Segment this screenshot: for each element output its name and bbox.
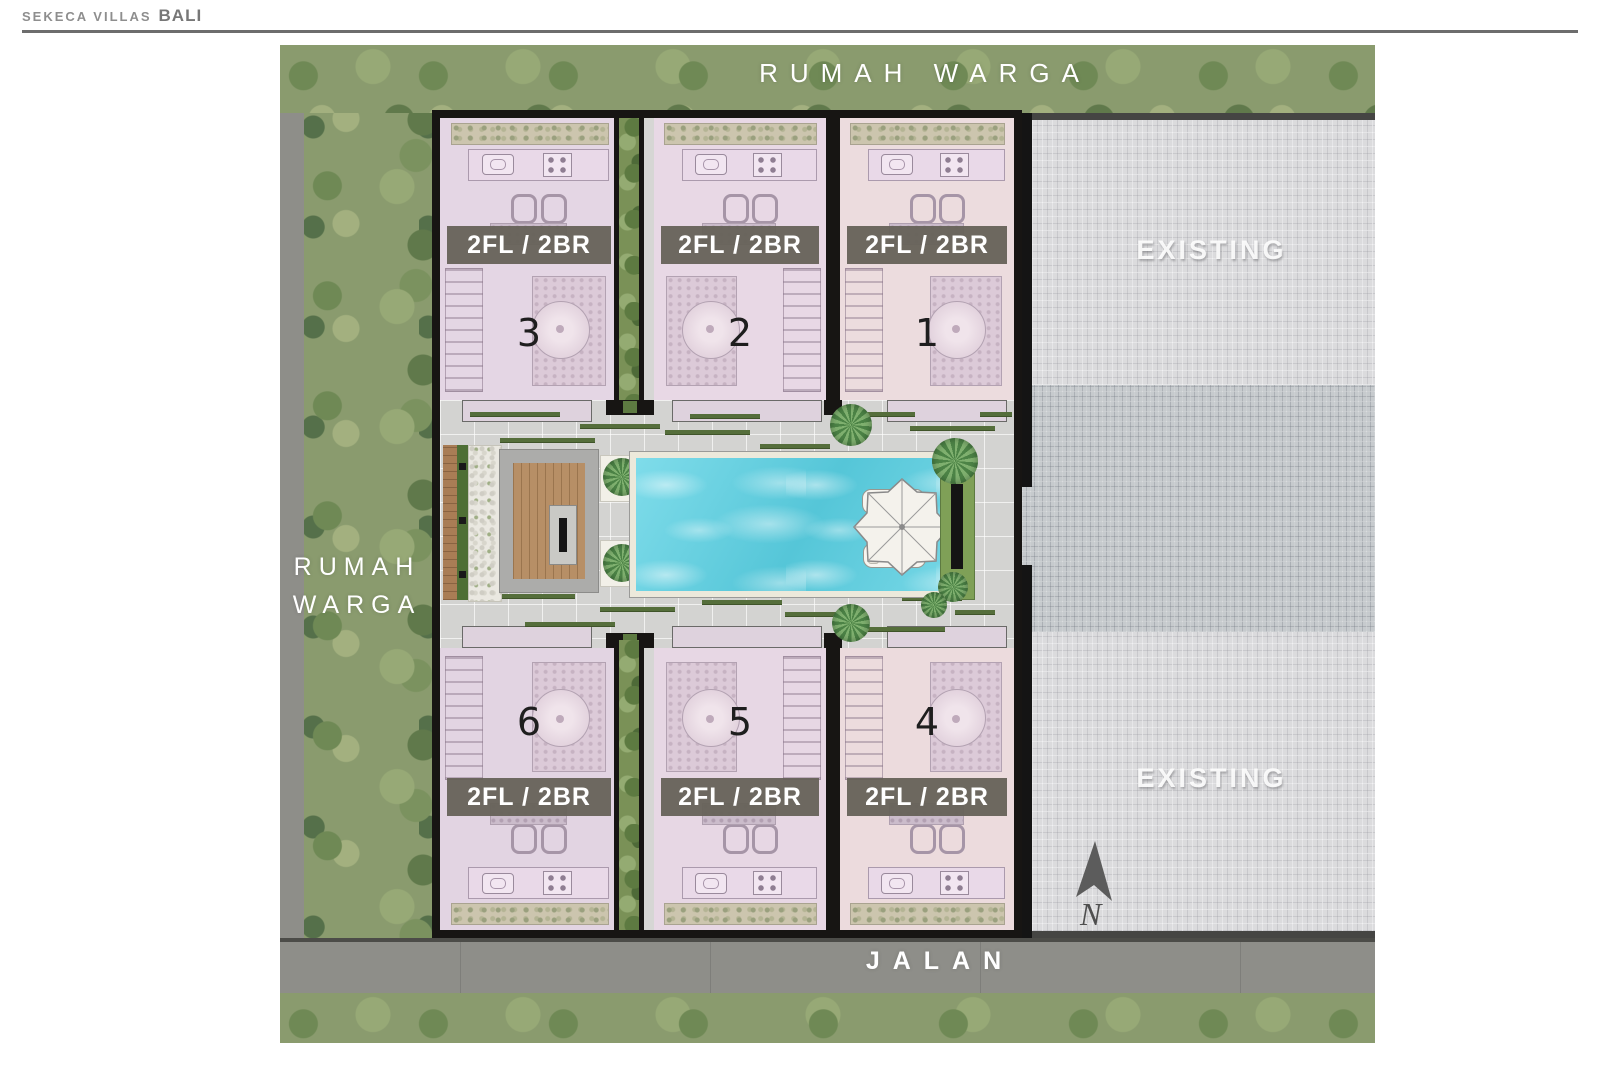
kitchen-counter: [682, 149, 818, 181]
kitchen-counter: [682, 867, 818, 899]
villa-4: 2FL / 2BR 4: [840, 648, 1014, 930]
site-plan: RUMAH WARGA RUMAH WARGA: [280, 45, 1375, 1043]
unit-number: 4: [840, 700, 1014, 744]
stool-icon: [723, 824, 749, 854]
grass-strip: [690, 414, 760, 419]
sink-icon: [482, 154, 514, 175]
shrub-icon: [921, 592, 947, 618]
label-rumah-warga-left: RUMAH WARGA: [282, 548, 432, 624]
sink-icon: [695, 154, 727, 175]
grass-strip: [760, 444, 830, 449]
stool-icon: [723, 194, 749, 224]
unit-spec-banner: 2FL / 2BR: [661, 226, 819, 264]
stool-icon: [511, 824, 537, 854]
lamp-icon: [459, 463, 466, 470]
pebble-garden: [468, 445, 502, 602]
kitchen-counter: [468, 867, 609, 899]
water-feature-icon: [951, 484, 963, 569]
garden-strip: [664, 123, 817, 145]
stool-icon: [541, 824, 567, 854]
garden-strip: [451, 903, 609, 925]
label-existing-bottom: EXISTING: [1022, 763, 1375, 794]
villa-terrace: [672, 626, 822, 648]
villa-block: 2FL / 2BR 3 2FL /: [432, 110, 1022, 938]
unit-spec-banner: 2FL / 2BR: [447, 226, 611, 264]
kitchen-counter: [868, 149, 1005, 181]
unit-number: 6: [440, 700, 618, 744]
stove-icon: [543, 871, 572, 895]
unit-number: 5: [654, 700, 826, 744]
stool-icon: [939, 824, 965, 854]
grass-strip: [490, 594, 575, 599]
palm-tree-icon: [932, 438, 978, 484]
lamp-icon: [459, 517, 466, 524]
trees-bottom-border: [280, 993, 1375, 1043]
unit-spec-banner: 2FL / 2BR: [447, 778, 611, 816]
villa-1: 2FL / 2BR 1: [840, 118, 1014, 400]
road-seam: [460, 942, 461, 993]
existing-wall-bottom: [1022, 931, 1375, 938]
unit-spec-banner: 2FL / 2BR: [661, 778, 819, 816]
existing-paving-middle: [1022, 385, 1375, 632]
sink-icon: [881, 154, 913, 175]
road-seam: [1240, 942, 1241, 993]
existing-area: EXISTING EXISTING N: [1022, 113, 1375, 938]
grass-border: [457, 445, 468, 600]
fire-table-icon: [549, 505, 577, 565]
garden-strip: [850, 903, 1005, 925]
stool-icon: [752, 824, 778, 854]
grass-strip: [525, 622, 615, 627]
grass-strip: [470, 412, 560, 417]
shrub-icon: [830, 404, 872, 446]
existing-wall-top: [1022, 113, 1375, 120]
sink-icon: [695, 873, 727, 894]
stool-icon: [910, 824, 936, 854]
lamp-icon: [459, 571, 466, 578]
villa-5: 2FL / 2BR 5: [654, 648, 826, 930]
umbrella-icon: [852, 477, 952, 577]
stool-icon: [939, 194, 965, 224]
stove-icon: [753, 153, 782, 177]
grass-strip: [865, 627, 945, 632]
stove-icon: [753, 871, 782, 895]
label-rumah-warga-top: RUMAH WARGA: [610, 58, 1240, 89]
garden-strip: [451, 123, 609, 145]
villa-3: 2FL / 2BR 3: [440, 118, 618, 400]
stove-icon: [543, 153, 572, 177]
garden-strip: [664, 903, 817, 925]
north-arrow-icon: N: [1062, 839, 1124, 931]
party-wall: [826, 118, 840, 400]
unit-spec-banner: 2FL / 2BR: [847, 226, 1007, 264]
unit-spec-banner: 2FL / 2BR: [847, 778, 1007, 816]
garden-strip: [850, 123, 1005, 145]
villa-6: 2FL / 2BR 6: [440, 648, 618, 930]
grass-strip: [665, 430, 750, 435]
villa-2: 2FL / 2BR 2: [654, 118, 826, 400]
boundary-wall: [1022, 565, 1032, 938]
planter-icon: [623, 401, 637, 413]
stool-icon: [541, 194, 567, 224]
sink-icon: [482, 873, 514, 894]
label-rumah-warga-left-line2: WARGA: [282, 586, 432, 624]
wood-deck-pavilion: [500, 450, 598, 592]
label-existing-top: EXISTING: [1022, 235, 1375, 266]
brand-name: SEKECA VILLAS: [22, 9, 152, 24]
stove-icon: [940, 153, 969, 177]
page-header: SEKECA VILLAS BALI: [22, 6, 202, 26]
label-jalan: JALAN: [680, 947, 1200, 976]
grass-strip: [702, 600, 782, 605]
unit-number: 1: [840, 311, 1014, 355]
grass-strip: [600, 607, 675, 612]
unit-number: 2: [654, 311, 826, 355]
unit-number: 3: [440, 311, 618, 355]
grass-strip: [980, 412, 1012, 417]
trees-left-border: [304, 45, 432, 938]
grass-strip: [500, 438, 595, 443]
site-plan-page: SEKECA VILLAS BALI RUMAH WARGA RUMAH WAR…: [0, 0, 1600, 1066]
sink-icon: [881, 873, 913, 894]
kitchen-counter: [868, 867, 1005, 899]
grass-strip: [955, 610, 995, 615]
stool-icon: [752, 194, 778, 224]
label-rumah-warga-left-line1: RUMAH: [282, 548, 432, 586]
stove-icon: [940, 871, 969, 895]
grass-strip: [580, 424, 660, 429]
stool-icon: [511, 194, 537, 224]
party-wall: [826, 640, 840, 930]
shrub-icon: [832, 604, 870, 642]
villa-terrace: [462, 626, 592, 648]
green-divider-strip: [614, 118, 644, 400]
kitchen-counter: [468, 149, 609, 181]
brand-name-bold: BALI: [159, 6, 203, 26]
wood-feature-wall: [443, 445, 457, 600]
stool-icon: [910, 194, 936, 224]
green-divider-strip: [614, 640, 644, 930]
villa-terrace: [462, 400, 592, 422]
boundary-wall: [1022, 113, 1032, 487]
grass-strip: [910, 426, 995, 431]
courtyard: [440, 400, 1014, 648]
north-letter: N: [1079, 896, 1103, 931]
header-divider: [22, 30, 1578, 33]
villa-terrace: [887, 400, 1007, 422]
wall-stub: [606, 400, 654, 415]
